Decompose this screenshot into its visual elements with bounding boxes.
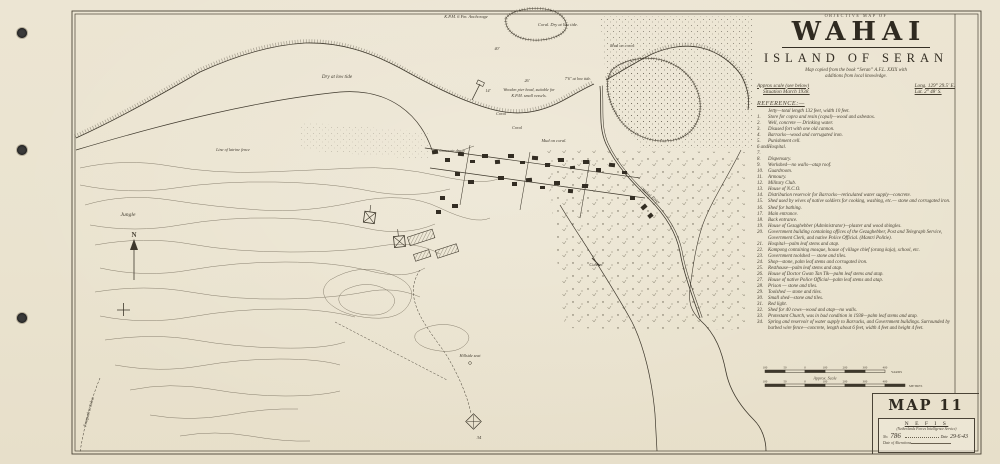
reference-item: 20. Government building containing offic…	[757, 230, 955, 242]
svg-text:100: 100	[823, 366, 828, 370]
reference-list: Jetty—total length 132 feet, width 10 fe…	[757, 109, 955, 333]
svg-text:50: 50	[783, 366, 787, 370]
map-label-pier-2: K.P.M. small vessels.	[510, 93, 546, 98]
map-label-coral-dry: Coral. Dry at low tide.	[538, 22, 578, 27]
map-sheet: K.P.M. 6 Fm. Anchorage Coral. Dry at low…	[0, 0, 1000, 464]
svg-text:300: 300	[863, 380, 868, 384]
map-label-drain: Concrete drain	[439, 148, 464, 153]
scale-situation: Approx scale (see below) Situation March…	[757, 83, 810, 96]
approx-scale-note: Approx scale (see below)	[757, 83, 810, 90]
yards-scale-bar: 100 50 0 100 200 300 400 YARDS	[763, 366, 903, 375]
svg-text:100: 100	[763, 380, 768, 384]
reference-heading: REFERENCE:—	[757, 100, 955, 107]
svg-text:0: 0	[804, 380, 806, 384]
svg-text:300: 300	[863, 366, 868, 370]
svg-text:50: 50	[783, 380, 787, 384]
map-number: MAP 11	[873, 397, 979, 414]
map-label-spring-34: 34	[477, 435, 482, 440]
situation-note: Situation March 1938.	[763, 89, 810, 96]
svg-text:400: 400	[883, 380, 888, 384]
reference-item: 34. Spring and reservoir of water supply…	[757, 320, 955, 332]
alterations-line: Date of Alterations	[879, 440, 974, 445]
yards-unit: YARDS	[891, 370, 902, 374]
map-label-hillside-seat: Hillside seat	[458, 353, 481, 358]
svg-text:200: 200	[843, 380, 848, 384]
svg-text:400: 400	[883, 366, 888, 370]
latitude: Lat. 2° 48′ S.	[915, 89, 955, 96]
svg-text:200: 200	[843, 366, 848, 370]
map-label-north: N	[131, 231, 136, 239]
map-label-jungle: Jungle	[121, 212, 136, 218]
pier	[463, 80, 484, 150]
source-note: Map copied from the book “Seran” A.F.L. …	[757, 68, 955, 80]
map-label-culvert: Culvert	[589, 262, 603, 267]
map-subtitle: ISLAND OF SERAN	[757, 51, 955, 66]
map-label-fence: Line of latrine fence	[215, 147, 250, 152]
reference-item: 6 and 7. Hospital.	[757, 145, 955, 157]
map-label-mud-ne: Mud on coral	[609, 43, 635, 48]
spring-reservoir-symbol	[466, 414, 482, 430]
svg-text:100: 100	[823, 380, 828, 384]
hillside-seat-symbol	[469, 362, 472, 365]
map-label-footpath: Footpath to Solea.	[82, 396, 95, 428]
date-label: Date	[941, 435, 948, 439]
map-label-coral-a: Coral	[496, 111, 507, 116]
map-label-mud: Mud on coral.	[541, 138, 567, 143]
fort-symbols	[363, 204, 405, 247]
corner-panel: MAP 11 N E F I S (Netherlands Forces Int…	[872, 393, 979, 454]
map-title: WAHAI	[782, 19, 931, 48]
title-block: OBJECTIVE MAP OF WAHAI ISLAND OF SERAN M…	[757, 13, 955, 333]
tree-field-west	[300, 122, 430, 160]
nefis-name: N E F I S	[879, 421, 974, 427]
map-label-coral-b: Coral	[512, 125, 523, 130]
contour-lines	[80, 162, 500, 441]
tree-field	[545, 150, 745, 330]
metres-scale-bar: 100 50 0 100 200 300 400 METRES	[763, 380, 923, 389]
map-label-depth-76: 7′6″ at low tide.	[565, 76, 592, 81]
map-label-depth-40: 40′	[494, 46, 499, 51]
metres-unit: METRES	[909, 384, 922, 388]
scale-bars: 100 50 0 100 200 300 400 YARDS Approx. S…	[757, 363, 957, 395]
coordinates: Long. 129° 29.5′ E. Lat. 2° 48′ S.	[915, 83, 955, 96]
no-value: 786	[890, 432, 901, 440]
nefis-box: N E F I S (Netherlands Forces Intelligen…	[878, 418, 975, 453]
svg-text:0: 0	[804, 366, 806, 370]
compass-north-arrow	[117, 239, 138, 316]
map-label-depth-26: 26′	[524, 78, 529, 83]
map-label-dry-low-tide: Dry at low tide	[321, 75, 353, 80]
date-value: 29·6·43	[950, 434, 968, 440]
map-label-depth-14: 14′	[485, 88, 490, 93]
map-label-anchorage: K.P.M. 6 Fm. Anchorage	[443, 14, 488, 19]
no-label: No.	[883, 435, 888, 439]
svg-text:100: 100	[763, 366, 768, 370]
